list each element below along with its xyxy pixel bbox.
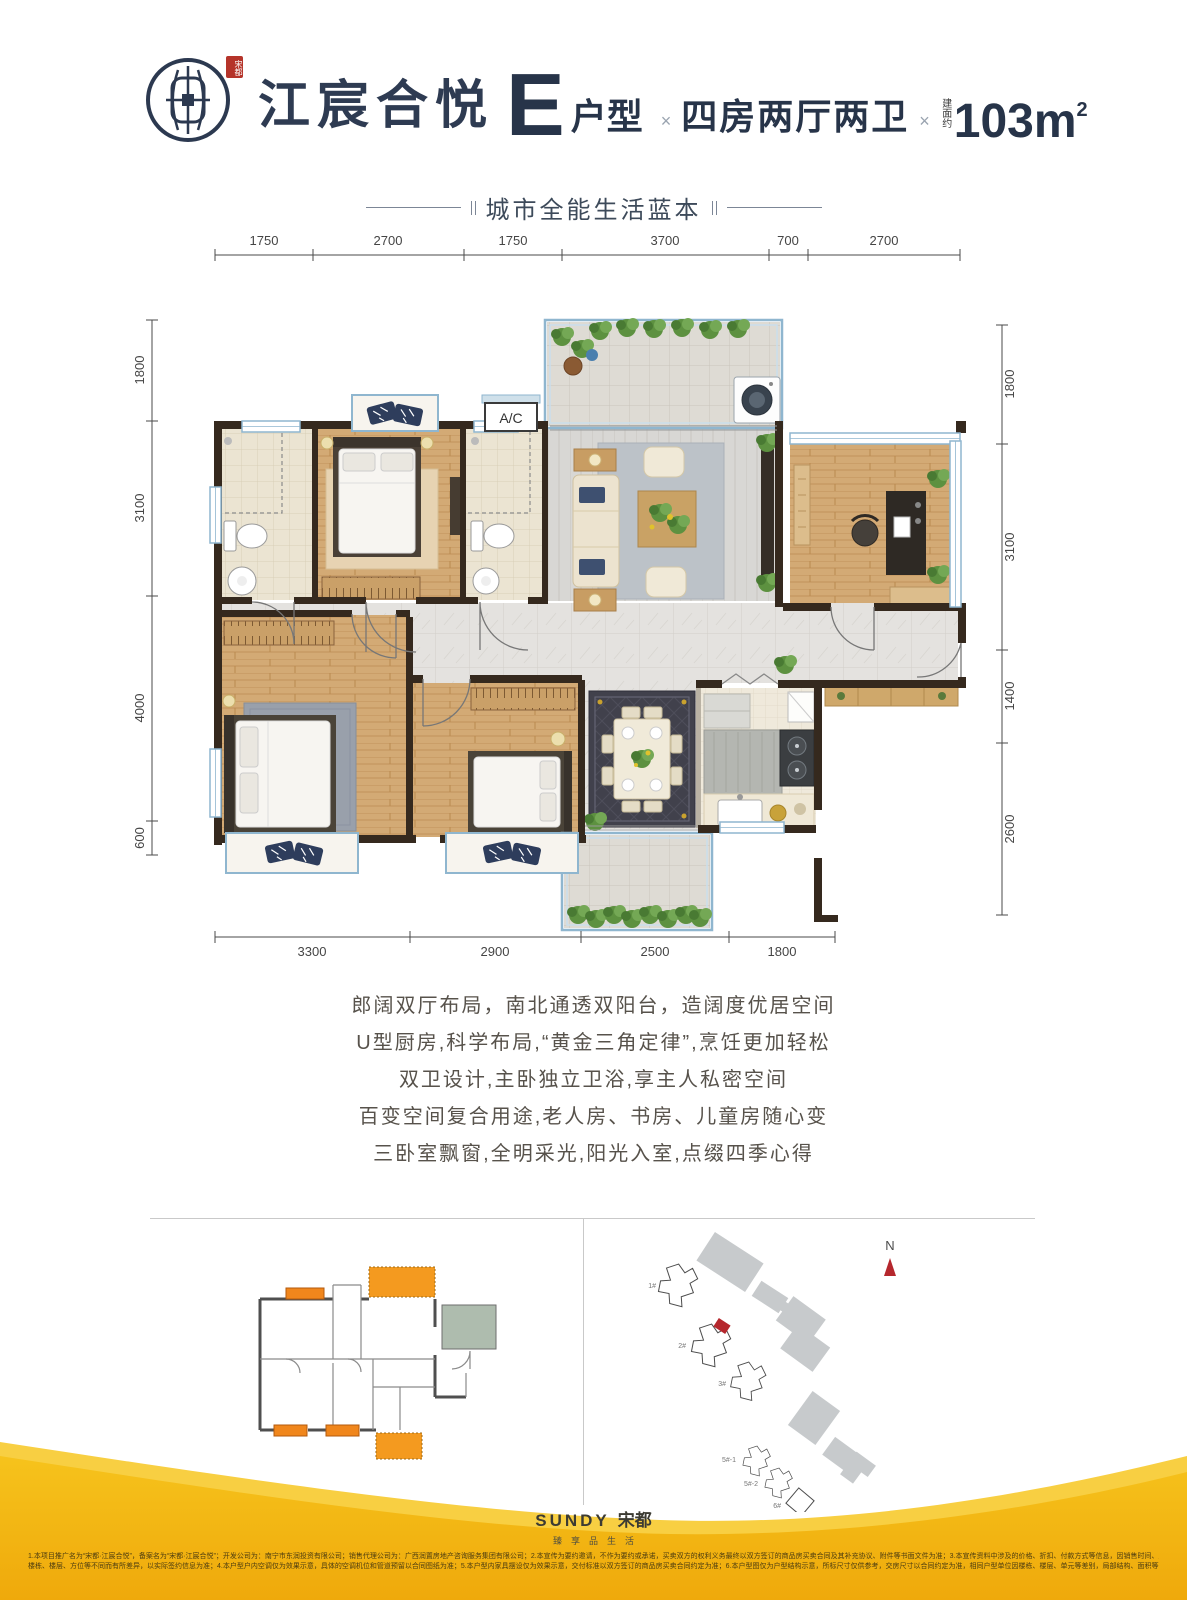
brand-name: 江宸合悦 [258, 63, 494, 138]
svg-text:2700: 2700 [374, 233, 403, 248]
svg-text:1400: 1400 [1002, 682, 1017, 711]
subtitle-line-left [366, 207, 461, 208]
balcony-decor [586, 349, 598, 361]
ac-label: A/C [499, 410, 522, 426]
feature-line: 百变空间复合用途,老人房、书房、儿童房随心变 [0, 1099, 1187, 1136]
mini-balcony-highlight [369, 1267, 435, 1297]
subtitle-line-right [727, 207, 822, 208]
lamp-icon [589, 454, 601, 466]
svg-text:1800: 1800 [768, 944, 797, 959]
subtitle-tick-right [712, 201, 717, 215]
bookshelf-icon [794, 465, 810, 545]
balcony-table [564, 357, 582, 375]
lamp-icon [421, 437, 433, 449]
counter-icon [704, 730, 782, 794]
shower-icon [471, 437, 479, 445]
unit-layout: 四房两厅两卫 [681, 88, 909, 140]
tv-console-icon [761, 449, 774, 577]
multiply-sign: × [919, 111, 930, 132]
svg-text:1750: 1750 [499, 233, 528, 248]
svg-text:2700: 2700 [870, 233, 899, 248]
dresser-icon [450, 477, 460, 535]
feature-line: U型厨房,科学布局,“黄金三角定律”,烹饪更加轻松 [0, 1025, 1187, 1062]
svg-text:3100: 3100 [132, 494, 147, 523]
svg-text:1750: 1750 [250, 233, 279, 248]
feature-line: 三卧室飘窗,全明采光,阳光入室,点缀四季心得 [0, 1136, 1187, 1173]
unit-suffix: 户型 [571, 88, 643, 140]
bay-window [446, 833, 578, 873]
wardrobe-icon [322, 577, 420, 599]
svg-text:1#: 1# [648, 1283, 656, 1290]
svg-text:3100: 3100 [1002, 533, 1017, 562]
brand-seal: 宋都 [226, 56, 243, 78]
disclaimer-line-1: 1.本项目推广名为“宋都·江宸合悦”，备案名为“宋都·江宸合悦”；开发公司为：南… [28, 1552, 1159, 1562]
window [210, 749, 221, 817]
svg-text:2900: 2900 [481, 944, 510, 959]
bedroom-3-furniture [468, 688, 575, 833]
window [950, 441, 961, 607]
washing-machine-icon [734, 377, 780, 423]
bay-window [226, 833, 358, 873]
svg-text:1800: 1800 [132, 356, 147, 385]
armchair-icon [644, 447, 684, 477]
stove-icon [780, 730, 814, 786]
divider-horizontal [150, 1218, 1035, 1219]
bed-icon [224, 715, 336, 833]
shower-icon [224, 437, 232, 445]
brand-logo: 宋都 江宸合悦 [142, 50, 494, 150]
brand-logo-mark [142, 54, 234, 146]
lamp-icon [551, 732, 565, 746]
svg-text:3300: 3300 [298, 944, 327, 959]
disclaimer: 1.本项目推广名为“宋都·江宸合悦”，备案名为“宋都·江宸合悦”；开发公司为：南… [28, 1552, 1159, 1572]
footer-tagline: 臻享品生活 [0, 1534, 1187, 1547]
subtitle-text: 城市全能生活蓝本 [486, 190, 702, 225]
ac-platform: A/C [482, 395, 540, 431]
svg-text:600: 600 [132, 827, 147, 849]
svg-text:2500: 2500 [641, 944, 670, 959]
area-label: 建面约 [940, 98, 951, 134]
window [720, 822, 784, 833]
svg-text:N: N [885, 1238, 894, 1253]
unit-area: 建面约 103m 2 [940, 98, 1088, 144]
multiply-sign: × [661, 111, 672, 132]
subtitle-tick-left [471, 201, 476, 215]
dining-furniture [584, 691, 695, 831]
svg-text:700: 700 [777, 233, 799, 248]
dining-table-icon [614, 719, 670, 799]
disclaimer-line-2: 楼栋、楼层、方位等不同而有所差异，以实际签约信息为准；4.本户型户内空调仅为效果… [28, 1562, 1159, 1572]
chair-icon [852, 520, 878, 546]
bed-icon [468, 751, 572, 833]
area-exponent: 2 [1077, 99, 1088, 122]
flyer-page: 宋都 江宸合悦 E 户型 × 四房两厅两卫 × 建面约 103m 2 城市全能生… [0, 0, 1187, 1600]
lamp-icon [589, 594, 601, 606]
wardrobe-icon [224, 621, 334, 645]
sofa-icon [573, 475, 619, 587]
feature-list: 郎阔双厅布局，南北通透双阳台，造阔度优居空间 U型厨房,科学布局,“黄金三角定律… [0, 988, 1187, 1173]
svg-text:1800: 1800 [1002, 370, 1017, 399]
footer-logo-cn: 宋都 [618, 1506, 652, 1531]
balcony-south [562, 833, 712, 930]
area-value: 103m [954, 100, 1077, 144]
feature-line: 双卫设计,主卧独立卫浴,享主人私密空间 [0, 1062, 1187, 1099]
feature-line: 郎阔双厅布局，南北通透双阳台，造阔度优居空间 [0, 988, 1187, 1025]
unit-title: E 户型 × 四房两厅两卫 × 建面约 103m 2 [506, 52, 1088, 144]
footer-brand: SUNDY 宋都 臻享品生活 [0, 1506, 1187, 1547]
window [210, 487, 221, 543]
armchair-icon [646, 567, 686, 597]
svg-text:3700: 3700 [651, 233, 680, 248]
coffee-table-icon [638, 491, 696, 547]
svg-text:2600: 2600 [1002, 815, 1017, 844]
cabinet-icon [890, 587, 954, 605]
north-compass-icon: N [884, 1238, 896, 1276]
bed-icon [333, 437, 421, 557]
floor-plan: A/C 1750 2700 1750 3700 7 [130, 225, 1030, 965]
lamp-icon [223, 695, 235, 707]
window [790, 433, 960, 444]
window [242, 421, 300, 432]
balcony-north [545, 318, 782, 428]
footer-logo-en: SUNDY [535, 1511, 610, 1531]
toilet-icon [484, 524, 514, 548]
subtitle: 城市全能生活蓝本 [0, 190, 1187, 225]
svg-text:4000: 4000 [132, 694, 147, 723]
lamp-icon [321, 437, 333, 449]
wardrobe-icon [471, 688, 575, 710]
unit-letter: E [506, 66, 565, 144]
toilet-icon [237, 524, 267, 548]
bay-window [352, 395, 438, 431]
